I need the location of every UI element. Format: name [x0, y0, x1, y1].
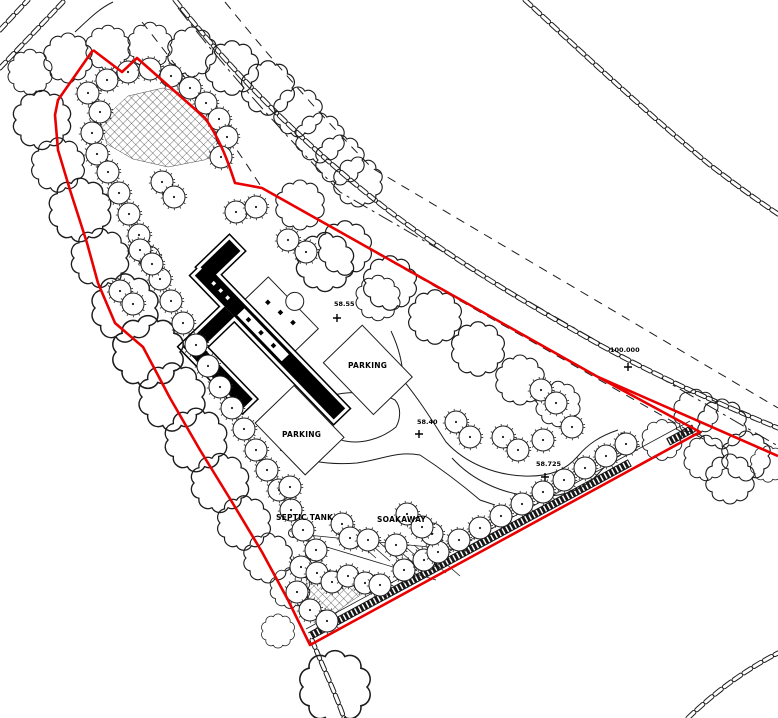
- proposed-tree-symbol: [255, 458, 280, 483]
- proposed-tree-symbol: [573, 456, 598, 481]
- proposed-tree-symbol: [244, 195, 269, 220]
- proposed-tree-symbol: [159, 289, 184, 314]
- existing-tree-symbol: [722, 431, 770, 481]
- existing-tree-symbol: [319, 221, 372, 276]
- existing-tree-symbol: [71, 228, 128, 287]
- existing-tree-symbol: [409, 290, 462, 345]
- proposed-tree-symbol: [552, 468, 577, 493]
- existing-tree-symbol: [262, 614, 295, 648]
- proposed-tree-symbol: [560, 415, 585, 440]
- existing-tree-symbol: [44, 33, 92, 83]
- proposed-tree-symbol: [594, 444, 619, 469]
- existing-tree-symbol: [13, 90, 70, 149]
- existing-tree-symbol: [8, 49, 52, 94]
- existing-tree-symbol: [276, 180, 324, 230]
- existing-tree-symbol: [300, 651, 370, 718]
- proposed-tree-symbol: [224, 200, 249, 225]
- existing-tree-symbol: [244, 533, 292, 583]
- proposed-tree-symbol: [291, 518, 316, 543]
- proposed-tree-symbol: [384, 533, 409, 558]
- existing-tree-symbol: [49, 178, 111, 242]
- proposed-tree-symbol: [244, 438, 269, 463]
- proposed-tree-symbol: [232, 417, 257, 442]
- proposed-tree-symbol: [531, 428, 556, 453]
- hedge-bank-strip: [306, 421, 694, 636]
- site-plan-drawing: PARKING PARKING SEPTIC TANK SOAKAWAY 58.…: [0, 0, 778, 718]
- existing-tree-symbol: [356, 275, 400, 320]
- proposed-tree-symbol: [117, 202, 142, 227]
- existing-tree-symbol: [139, 363, 205, 431]
- proposed-tree-symbol: [614, 432, 639, 457]
- existing-tree-symbol: [452, 322, 505, 377]
- existing-tree-symbol: [316, 135, 364, 185]
- proposed-tree-symbol: [279, 498, 304, 523]
- existing-tree-symbol: [334, 157, 382, 207]
- existing-tree-symbol: [364, 256, 417, 311]
- site-plan-canvas: [0, 0, 778, 718]
- existing-tree-symbol: [706, 454, 754, 504]
